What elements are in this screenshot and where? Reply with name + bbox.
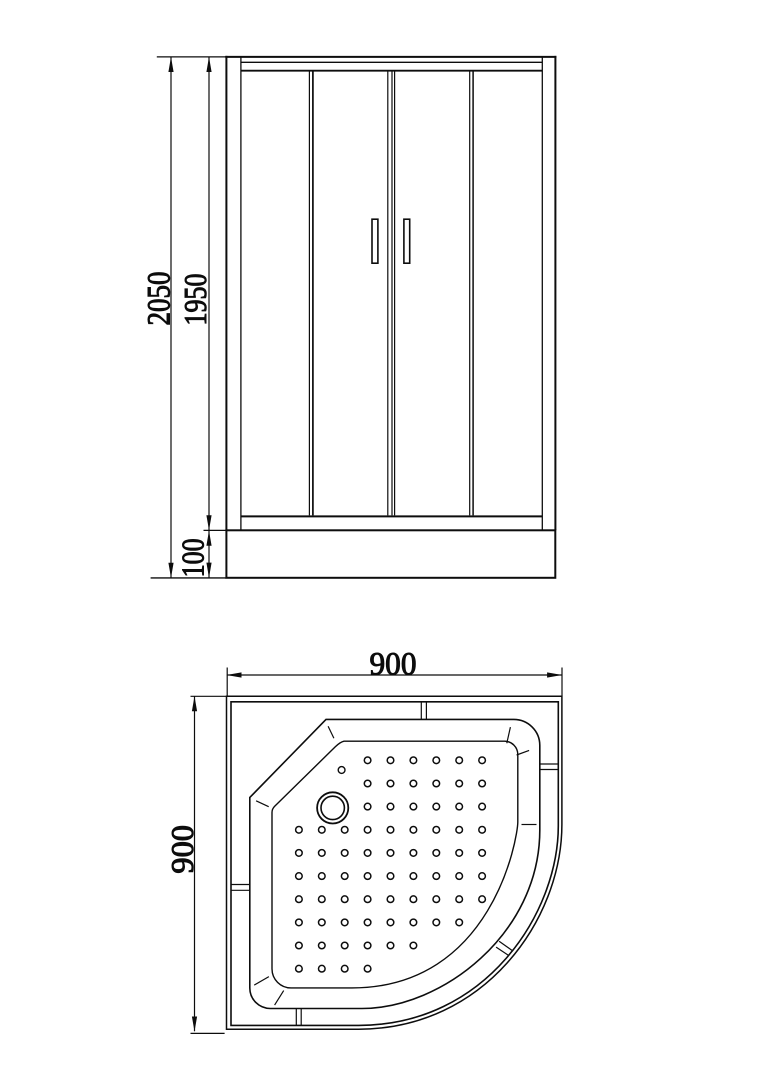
svg-text:2050: 2050 bbox=[142, 272, 178, 326]
svg-text:100: 100 bbox=[175, 538, 211, 577]
svg-text:1950: 1950 bbox=[178, 274, 213, 326]
svg-text:900: 900 bbox=[164, 825, 200, 874]
svg-text:900: 900 bbox=[370, 646, 417, 682]
